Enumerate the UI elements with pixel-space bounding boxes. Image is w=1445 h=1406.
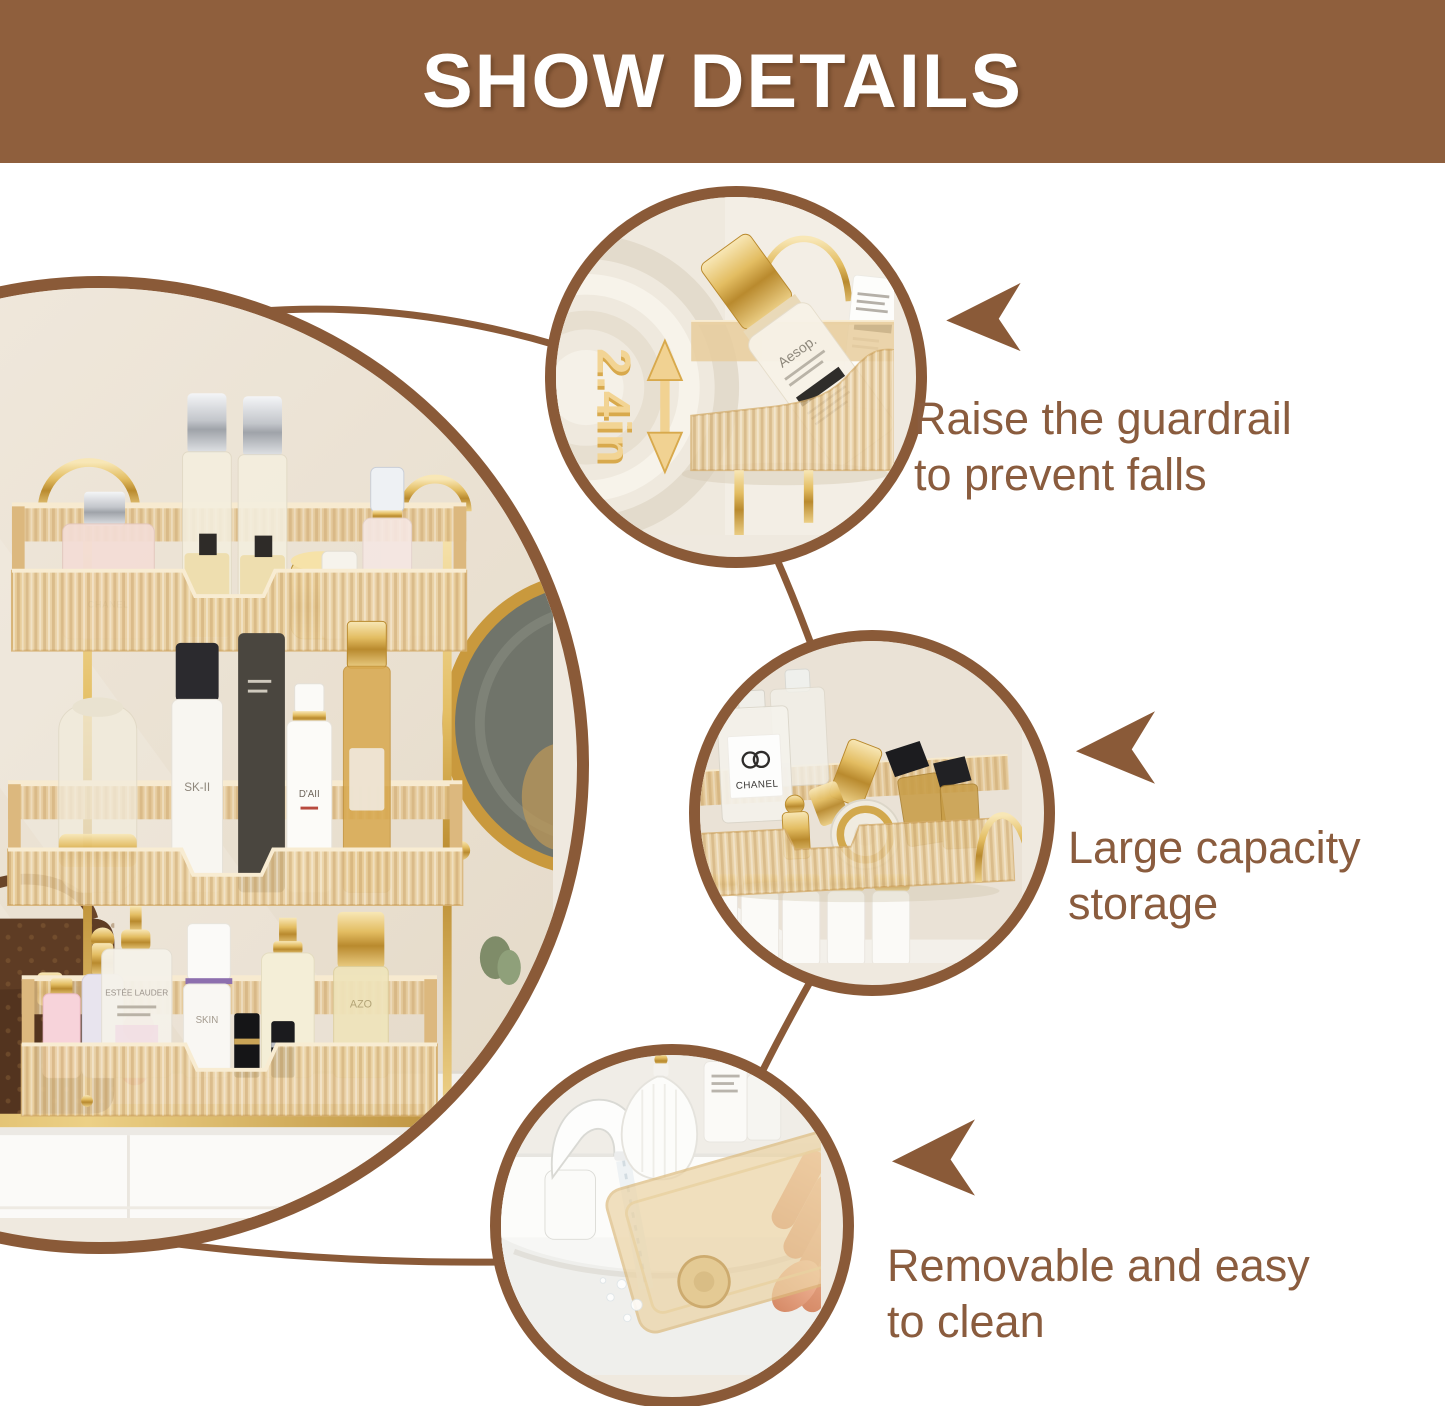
organizer-pole	[804, 470, 813, 523]
svg-text:CHANEL: CHANEL	[736, 779, 779, 792]
svg-text:SKIN: SKIN	[196, 1015, 219, 1026]
toiletry-bottle	[747, 1075, 781, 1140]
measurement-annotation: 2.4in 2.4in	[587, 348, 639, 468]
svg-text:D'AII: D'AII	[299, 789, 320, 800]
svg-text:2.4in: 2.4in	[587, 348, 639, 464]
banner: SHOW DETAILS	[0, 0, 1445, 163]
organizer-foot	[441, 1095, 453, 1107]
svg-text:AZO: AZO	[350, 998, 372, 1010]
svg-text:SK-II: SK-II	[184, 781, 210, 794]
callout-text-storage: Large capacity storage	[1068, 820, 1418, 932]
page-title: SHOW DETAILS	[422, 38, 1023, 125]
svg-text:ESTÉE LAUDER: ESTÉE LAUDER	[105, 988, 168, 998]
detail-photo-guardrail: Aesop. 2.4in 2.4in	[545, 186, 927, 568]
toiletry-bottle	[704, 1062, 747, 1142]
connector-line	[762, 982, 810, 1072]
organizer-foot	[81, 1095, 93, 1107]
callout-arrow-icon	[1075, 708, 1155, 787]
callout-text-clean: Removable and easy to clean	[887, 1238, 1337, 1350]
organizer-pole	[734, 470, 743, 535]
detail-photo-storage: CHANEL	[689, 630, 1055, 996]
detail-photo-clean	[490, 1044, 854, 1406]
perfume-bottle-chanel: CHANEL	[716, 689, 794, 824]
callout-arrow-icon	[941, 282, 1025, 352]
callout-arrow-icon	[891, 1117, 975, 1198]
product-infographic: SHOW DETAILS	[0, 0, 1445, 1406]
callout-text-guardrail: Raise the guardrail to prevent falls	[914, 391, 1334, 503]
